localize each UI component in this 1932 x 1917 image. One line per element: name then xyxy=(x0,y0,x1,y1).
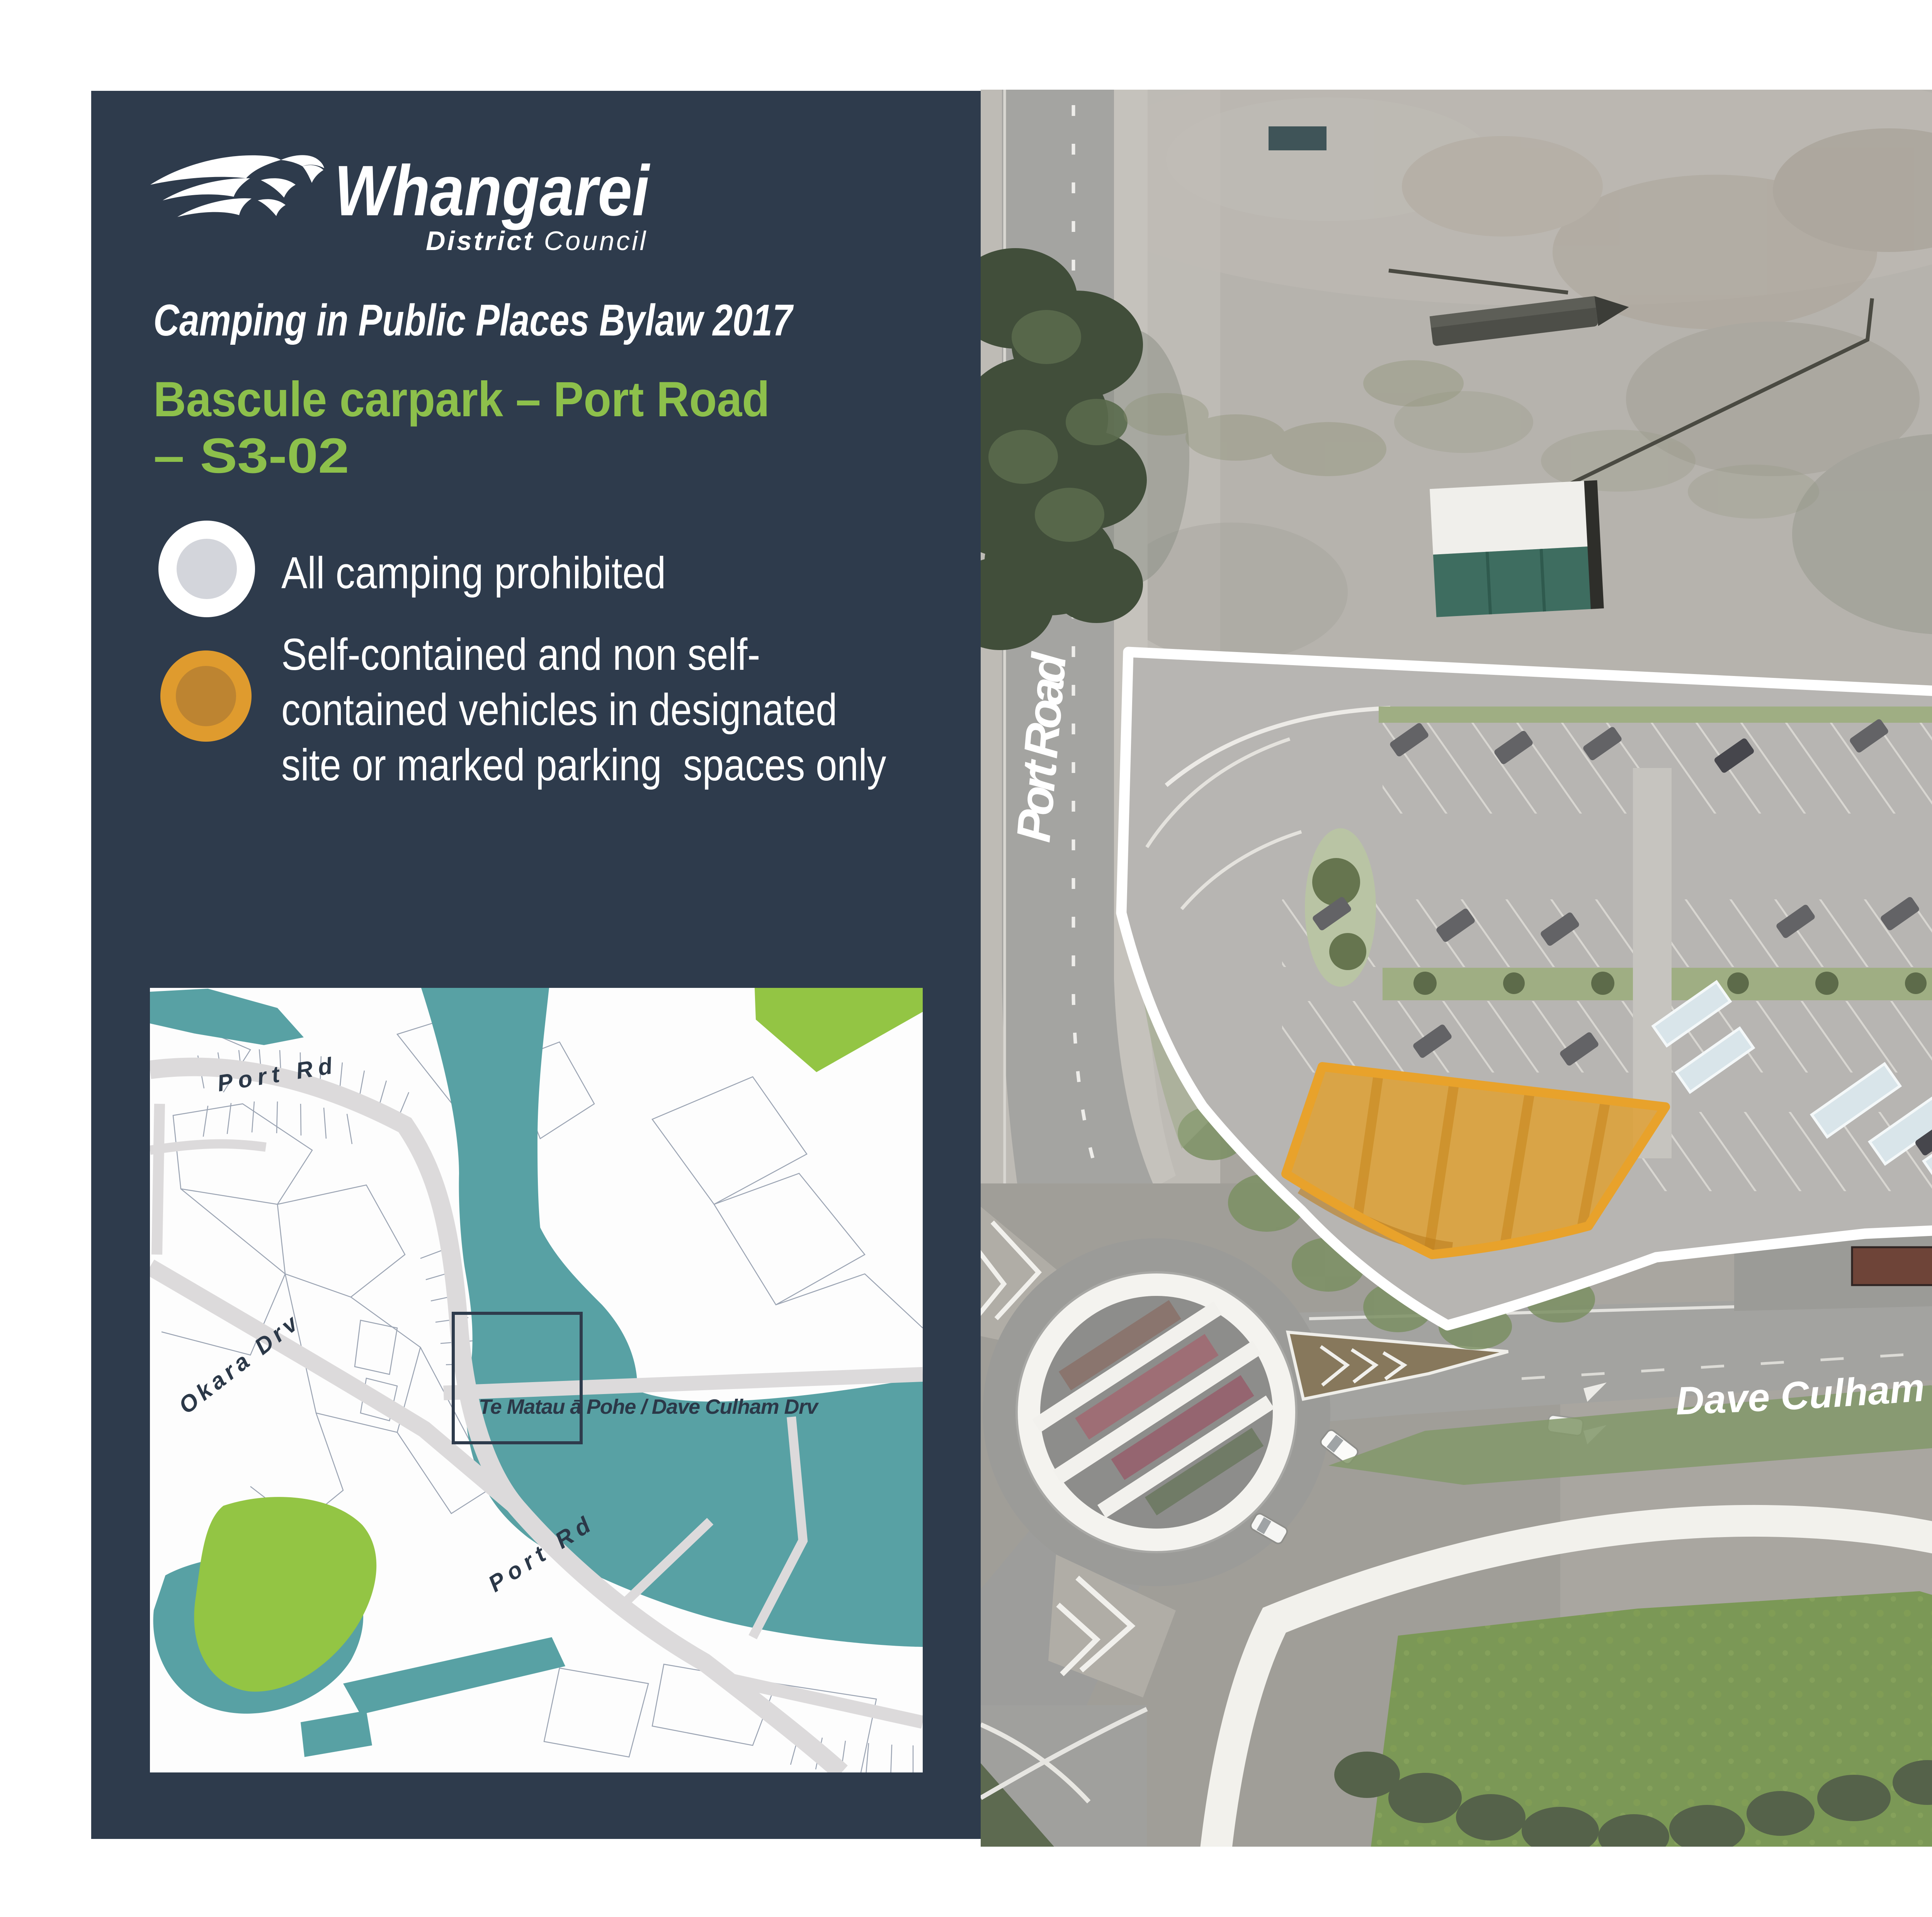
svg-text:Te Matau ā Pohe / Dave Culham: Te Matau ā Pohe / Dave Culham Drv xyxy=(479,1395,819,1418)
